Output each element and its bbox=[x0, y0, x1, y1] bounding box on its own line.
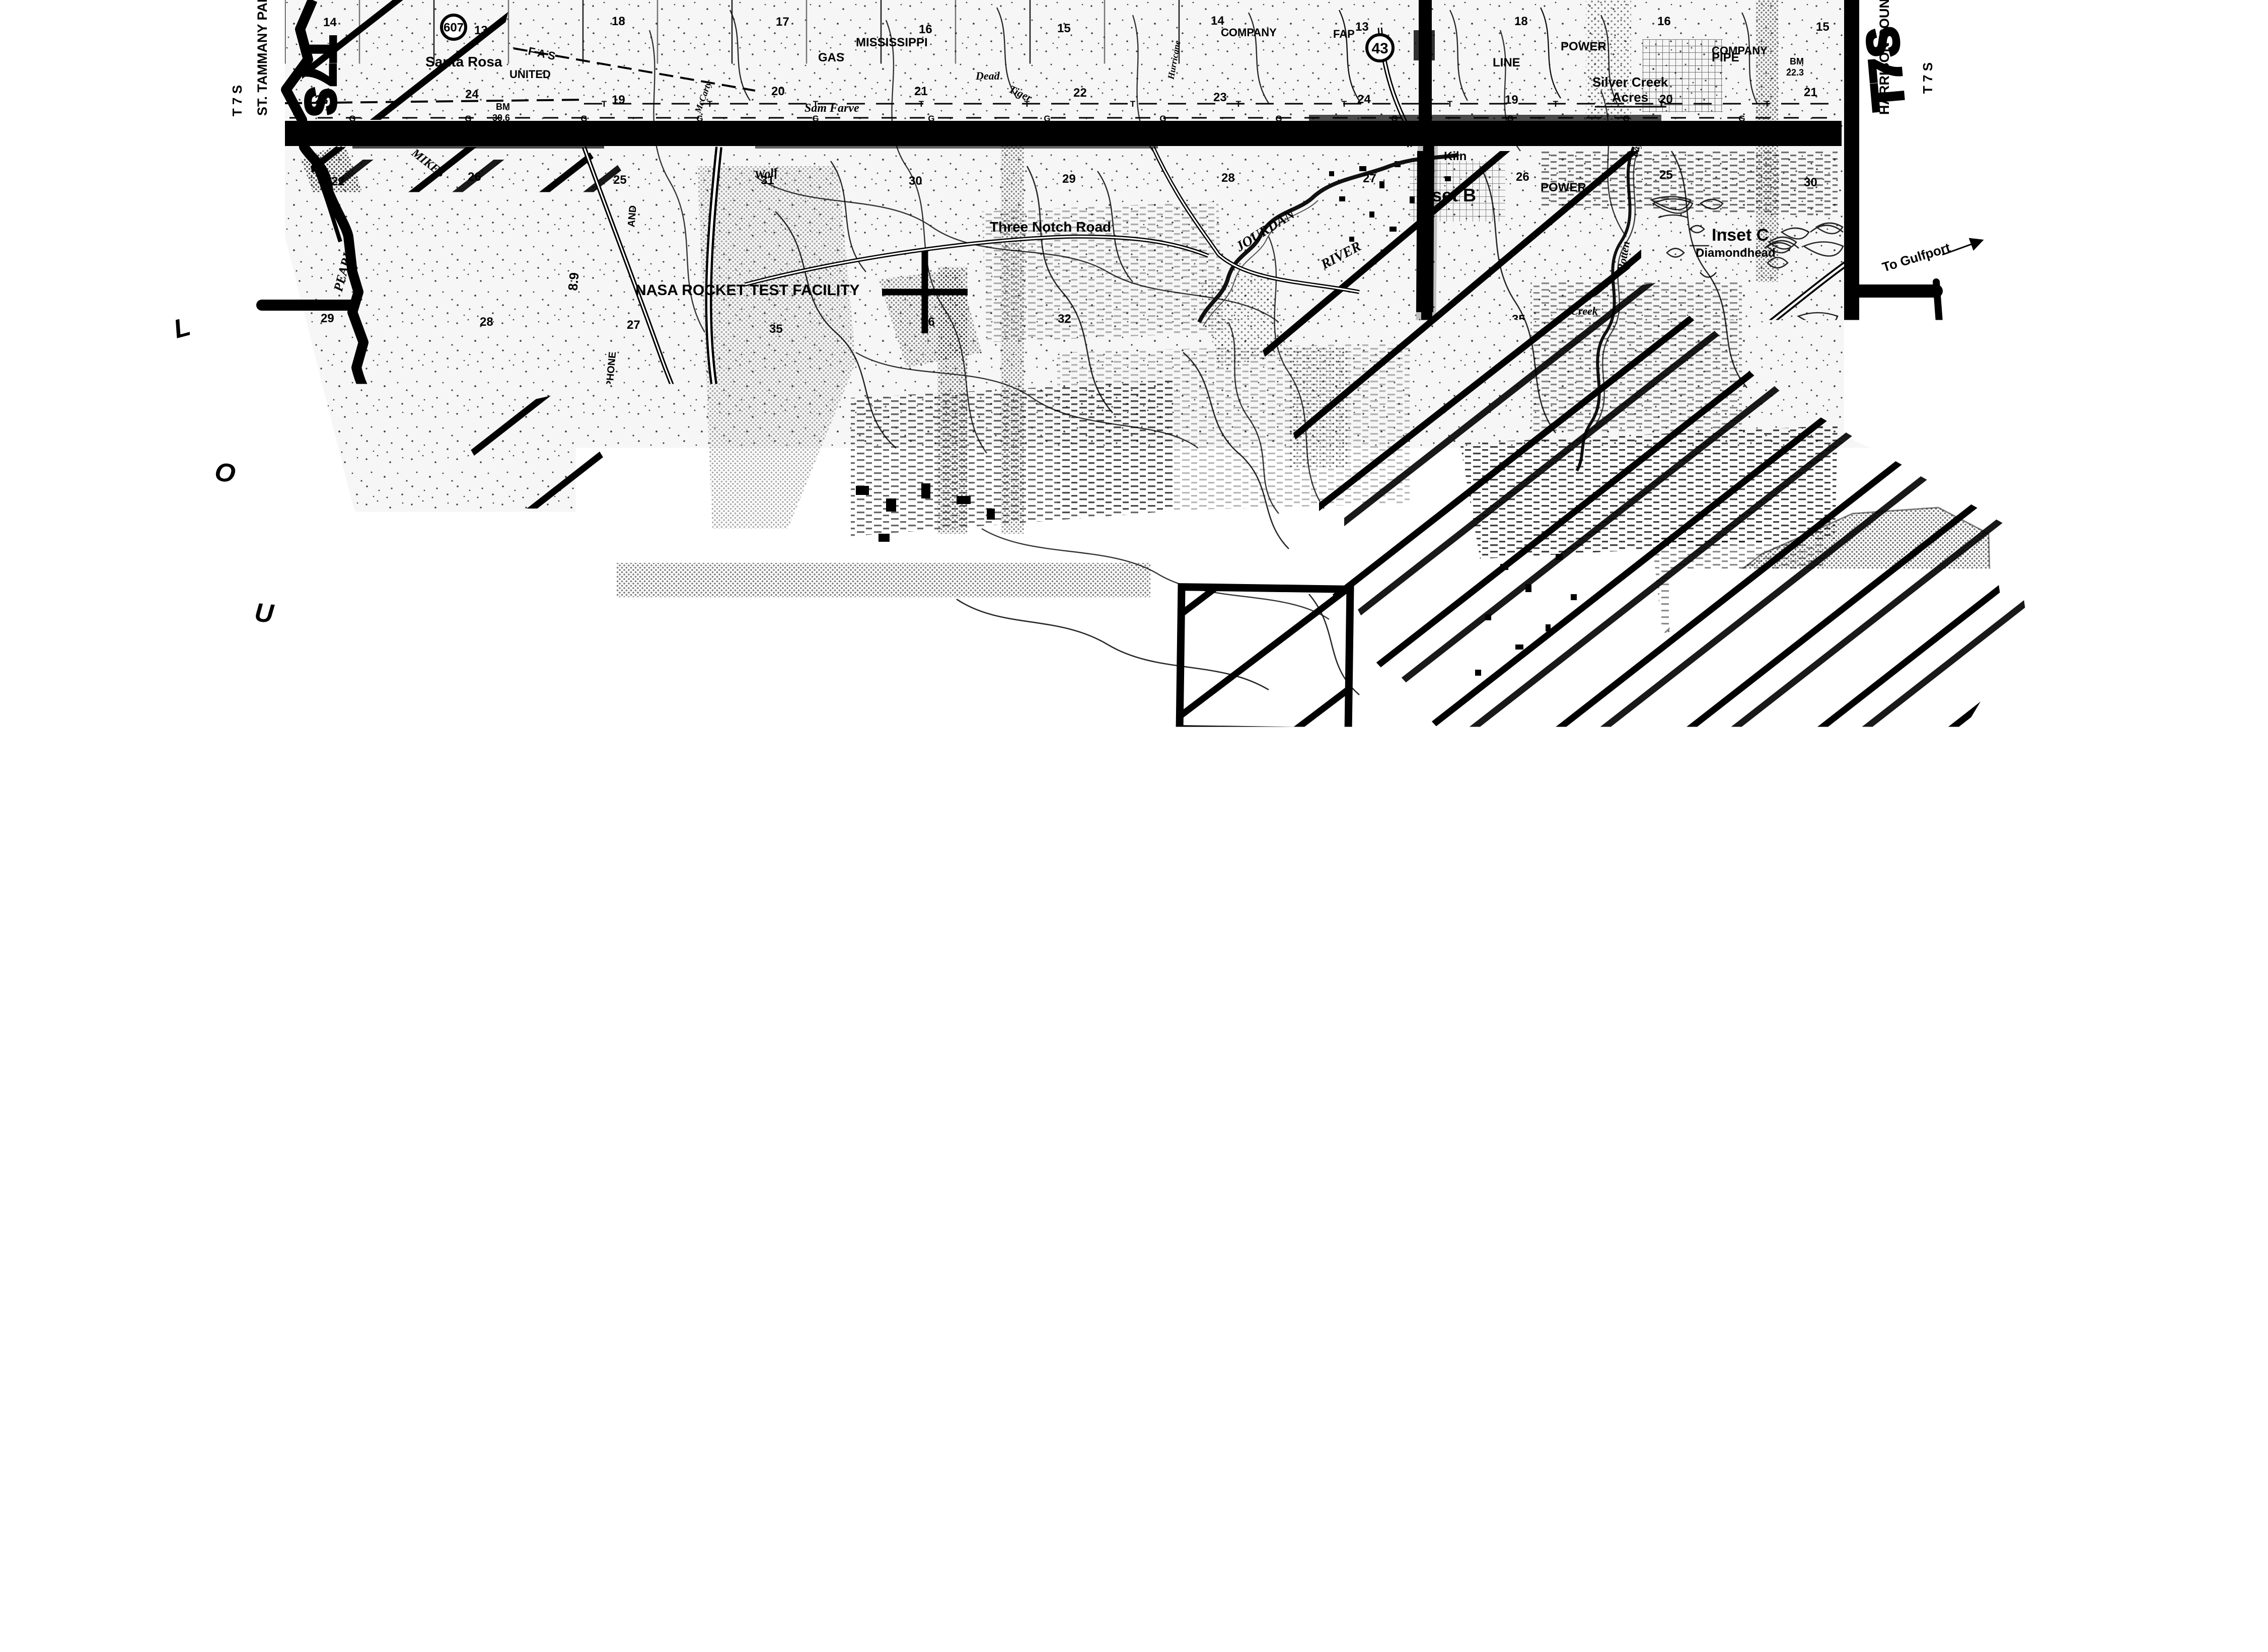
svg-text:JOHN: JOHN bbox=[1295, 332, 1323, 343]
svg-text:HANCOCK COUNTY: HANCOCK COUNTY bbox=[1542, 1145, 2040, 1214]
svg-text:GRAND-: GRAND- bbox=[986, 1203, 1030, 1216]
svg-text:To New Orleans: To New Orleans bbox=[384, 721, 474, 734]
svg-text:13: 13 bbox=[1220, 904, 1234, 918]
svg-text:X: X bbox=[1770, 531, 1776, 541]
svg-text:10: 10 bbox=[799, 608, 817, 626]
svg-text:26: 26 bbox=[1516, 170, 1529, 184]
svg-text:BALDWIN: BALDWIN bbox=[915, 1247, 968, 1260]
svg-text:24: 24 bbox=[616, 1042, 630, 1055]
svg-text:Lower: Lower bbox=[677, 805, 706, 817]
svg-text:Santa Rosa: Santa Rosa bbox=[425, 54, 502, 69]
svg-text:T 8 S: T 8 S bbox=[403, 509, 417, 539]
svg-text:COMPANY: COMPANY bbox=[1712, 44, 1768, 57]
svg-text:607: 607 bbox=[444, 21, 464, 35]
svg-text:Ansley: Ansley bbox=[1153, 1103, 1193, 1117]
svg-text:PAGE: PAGE bbox=[1647, 1324, 1696, 1343]
svg-text:BM 20: BM 20 bbox=[1766, 510, 1793, 520]
svg-text:UNINSURABLE EXCEPT BY FCI-2: UNINSURABLE EXCEPT BY FCI-2 bbox=[1725, 1253, 1967, 1272]
svg-text:10.9: 10.9 bbox=[1168, 556, 1196, 572]
svg-text:ISLAND: ISLAND bbox=[1353, 1146, 1392, 1158]
svg-text:22: 22 bbox=[331, 175, 345, 188]
svg-text:16: 16 bbox=[1657, 15, 1671, 28]
svg-text:Three Notch Road: Three Notch Road bbox=[990, 219, 1111, 235]
svg-text:24: 24 bbox=[1357, 93, 1371, 106]
svg-text:5.5: 5.5 bbox=[1449, 441, 1464, 452]
svg-text:Lakeshore: Lakeshore bbox=[1341, 974, 1407, 989]
svg-text:T: T bbox=[1130, 99, 1136, 109]
svg-text:21: 21 bbox=[1804, 86, 1817, 99]
svg-text:14: 14 bbox=[1211, 14, 1224, 28]
svg-text:BUCCANEER: BUCCANEER bbox=[1521, 980, 1592, 992]
svg-text:AND: AND bbox=[626, 205, 639, 228]
svg-text:ST. TAMMANY PARISH: ST. TAMMANY PARISH bbox=[255, 0, 270, 116]
svg-text:26: 26 bbox=[911, 1188, 924, 1202]
svg-text:R15W: R15W bbox=[1153, 1465, 1275, 1512]
svg-text:5: 5 bbox=[1368, 468, 1374, 481]
svg-text:6: 6 bbox=[1207, 461, 1213, 474]
svg-text:T: T bbox=[1447, 99, 1453, 109]
svg-text:ACREAGE SO DESIGNATED IS: ACREAGE SO DESIGNATED IS bbox=[1726, 1235, 1948, 1254]
svg-text:Inset E: Inset E bbox=[662, 1064, 728, 1086]
svg-text:21.6: 21.6 bbox=[1763, 520, 1781, 530]
svg-text:FAP: FAP bbox=[1333, 28, 1355, 40]
svg-text:30: 30 bbox=[909, 174, 922, 188]
svg-text:22: 22 bbox=[1073, 86, 1087, 100]
svg-text:MAP: MAP bbox=[1336, 690, 1362, 703]
svg-text:WAVELAND: WAVELAND bbox=[1609, 752, 1700, 770]
svg-text:3: 3 bbox=[1835, 1307, 1849, 1335]
svg-text:SEE: SEE bbox=[1337, 640, 1361, 654]
svg-text:20: 20 bbox=[1659, 93, 1673, 106]
svg-text:R 17 W: R 17 W bbox=[323, 652, 370, 668]
svg-text:7: 7 bbox=[776, 753, 783, 766]
svg-text:16: 16 bbox=[776, 900, 789, 914]
svg-text:29: 29 bbox=[1362, 1188, 1376, 1201]
svg-text:Vermont: Vermont bbox=[1380, 891, 1429, 904]
svg-text:25: 25 bbox=[613, 173, 627, 187]
svg-text:1: 1 bbox=[1070, 458, 1077, 471]
svg-text:8: 8 bbox=[920, 754, 927, 768]
svg-text:GAS: GAS bbox=[818, 51, 844, 64]
svg-text:8: 8 bbox=[1509, 609, 1515, 622]
svg-text:T 9 S: T 9 S bbox=[455, 967, 469, 997]
svg-text:17: 17 bbox=[615, 901, 628, 915]
svg-text:24: 24 bbox=[770, 1194, 784, 1208]
svg-text:34: 34 bbox=[1358, 323, 1371, 336]
svg-text:T7S: T7S bbox=[1857, 24, 1914, 112]
svg-text:19: 19 bbox=[765, 1048, 779, 1061]
svg-text:2.8: 2.8 bbox=[558, 692, 577, 708]
svg-text:MISSISSIPPI: MISSISSIPPI bbox=[856, 36, 928, 49]
svg-text:604: 604 bbox=[710, 782, 732, 798]
svg-text:NASA ROCKET TEST FACILITY: NASA ROCKET TEST FACILITY bbox=[635, 282, 860, 299]
svg-text:90: 90 bbox=[1639, 699, 1655, 715]
svg-text:X 13.4: X 13.4 bbox=[577, 417, 603, 427]
svg-text:14.3: 14.3 bbox=[1231, 702, 1247, 711]
svg-text:34: 34 bbox=[770, 466, 783, 480]
svg-text:28: 28 bbox=[1221, 171, 1235, 185]
svg-text:12: 12 bbox=[1206, 606, 1219, 619]
svg-text:36: 36 bbox=[1665, 317, 1679, 331]
svg-text:T: T bbox=[1236, 99, 1241, 109]
svg-text:DATE PREPARED: DATE PREPARED bbox=[1650, 1368, 1805, 1388]
svg-text:26: 26 bbox=[468, 170, 481, 184]
svg-text:13: 13 bbox=[474, 24, 488, 37]
svg-text:LINE: LINE bbox=[1493, 56, 1520, 69]
svg-text:OF: OF bbox=[1800, 1326, 1822, 1344]
svg-text:Napolean: Napolean bbox=[585, 614, 648, 629]
svg-text:607: 607 bbox=[618, 547, 640, 562]
svg-text:CEDAR: CEDAR bbox=[1352, 1135, 1389, 1146]
svg-text:X: X bbox=[644, 541, 650, 551]
svg-text:15: 15 bbox=[1816, 20, 1830, 34]
svg-text:BAY ST. LOUIS: BAY ST. LOUIS bbox=[1306, 657, 1392, 670]
svg-text:43: 43 bbox=[1371, 40, 1388, 57]
svg-text:12: 12 bbox=[614, 755, 628, 769]
svg-text:30.6: 30.6 bbox=[492, 113, 510, 123]
svg-text:UNITED: UNITED bbox=[509, 68, 551, 81]
svg-text:Acres: Acres bbox=[1612, 90, 1648, 105]
svg-text:43: 43 bbox=[1451, 467, 1468, 483]
svg-text:R14W: R14W bbox=[1605, 920, 1715, 963]
svg-text:COMPANY: COMPANY bbox=[1221, 26, 1277, 39]
svg-text:8.3: 8.3 bbox=[795, 909, 815, 924]
svg-text:POWER: POWER bbox=[1561, 40, 1606, 53]
svg-text:LODGE: LODGE bbox=[926, 1260, 965, 1272]
svg-text:T 7 S: T 7 S bbox=[230, 85, 245, 116]
svg-text:18: 18 bbox=[1814, 758, 1827, 771]
svg-text:30: 30 bbox=[1804, 176, 1817, 189]
svg-text:HERON BAY POINT: HERON BAY POINT bbox=[1180, 1364, 1282, 1377]
svg-text:Inset: Inset bbox=[1220, 1118, 1260, 1137]
svg-text:18: 18 bbox=[1514, 15, 1528, 28]
svg-text:13: 13 bbox=[1355, 20, 1369, 34]
svg-text:CAMPBELL: CAMPBELL bbox=[1115, 1231, 1174, 1242]
svg-text:T10S: T10S bbox=[1382, 1250, 1433, 1348]
svg-text:STENNIS: STENNIS bbox=[1289, 343, 1333, 354]
svg-text:4: 4 bbox=[912, 612, 919, 626]
svg-text:AIRPORT: AIRPORT bbox=[1292, 354, 1337, 365]
svg-text:Harbor: Harbor bbox=[1383, 904, 1423, 917]
svg-text:T 10 S: T 10 S bbox=[652, 1342, 665, 1377]
svg-text:21: 21 bbox=[914, 85, 928, 98]
svg-text:8.9: 8.9 bbox=[565, 272, 582, 292]
svg-text:COWAND POINT: COWAND POINT bbox=[1877, 521, 1964, 534]
svg-text:T: T bbox=[707, 99, 713, 109]
svg-text:27: 27 bbox=[627, 318, 640, 332]
svg-text:607: 607 bbox=[828, 706, 850, 721]
svg-text:AGREEMENT BETWEEN THE FAO: AGREEMENT BETWEEN THE FAO bbox=[1725, 1271, 1971, 1290]
svg-text:36: 36 bbox=[921, 315, 935, 329]
svg-text:PAGES: PAGES bbox=[1864, 1327, 1925, 1345]
svg-text:Diamondhead: Diamondhead bbox=[1696, 246, 1776, 260]
svg-text:PO. 6.752 23: PO. 6.752 23 bbox=[1837, 673, 1908, 687]
svg-text:Devils: Devils bbox=[1015, 419, 1044, 432]
svg-text:BM: BM bbox=[958, 1534, 970, 1543]
svg-text:Dead: Dead bbox=[975, 69, 1000, 82]
svg-text:T: T bbox=[602, 99, 607, 109]
svg-text:ISLAND: ISLAND bbox=[1126, 1242, 1165, 1253]
svg-text:BM: BM bbox=[1790, 56, 1804, 66]
svg-text:22: 22 bbox=[1206, 1042, 1219, 1056]
svg-text:Kiln: Kiln bbox=[1444, 150, 1467, 163]
svg-text:32: 32 bbox=[1058, 312, 1071, 326]
svg-text:32: 32 bbox=[479, 466, 493, 479]
svg-text:T8S: T8S bbox=[437, 478, 491, 562]
svg-text:STATE PARK: STATE PARK bbox=[1525, 992, 1594, 1004]
svg-text:18: 18 bbox=[612, 15, 625, 28]
svg-text:R 16 W: R 16 W bbox=[517, 656, 564, 672]
svg-text:29: 29 bbox=[321, 312, 334, 325]
svg-text:T10S: T10S bbox=[654, 1248, 700, 1337]
svg-text:5: 5 bbox=[773, 608, 780, 622]
svg-text:BROWNS ISLAND: BROWNS ISLAND bbox=[538, 1143, 641, 1157]
svg-text:28: 28 bbox=[924, 1333, 938, 1346]
svg-text:Inset D: Inset D bbox=[1210, 822, 1271, 843]
svg-text:6: 6 bbox=[621, 603, 628, 616]
svg-text:20: 20 bbox=[771, 85, 785, 98]
svg-text:R 14 W: R 14 W bbox=[1618, 965, 1661, 980]
svg-text:T: T bbox=[1765, 99, 1770, 109]
svg-text:19: 19 bbox=[612, 93, 625, 107]
svg-text:23: 23 bbox=[1353, 1050, 1366, 1063]
svg-text:33: 33 bbox=[620, 462, 634, 475]
svg-text:20: 20 bbox=[912, 1042, 926, 1056]
svg-text:BM: BM bbox=[963, 691, 975, 700]
svg-text:90: 90 bbox=[825, 912, 841, 928]
svg-text:25: 25 bbox=[1659, 168, 1673, 182]
svg-text:14: 14 bbox=[323, 16, 337, 29]
svg-text:T 7 S: T 7 S bbox=[1920, 62, 1935, 94]
svg-text:Lighthouse Bayou: Lighthouse Bayou bbox=[1224, 1347, 1308, 1360]
svg-text:22: 22 bbox=[1519, 901, 1532, 914]
svg-text:Logtown: Logtown bbox=[576, 843, 635, 859]
svg-text:1: 1 bbox=[474, 613, 480, 627]
svg-text:24: 24 bbox=[465, 88, 479, 101]
svg-text:To New Orleans: To New Orleans bbox=[498, 1046, 589, 1059]
svg-text:2: 2 bbox=[1816, 467, 1823, 481]
svg-text:R 16 W: R 16 W bbox=[685, 1551, 729, 1566]
svg-text:16: 16 bbox=[919, 23, 932, 36]
svg-text:14: 14 bbox=[1060, 906, 1073, 919]
svg-text:35: 35 bbox=[1512, 313, 1525, 326]
svg-text:2: 2 bbox=[923, 466, 929, 479]
svg-text:28: 28 bbox=[480, 315, 493, 329]
svg-text:26: 26 bbox=[1207, 1344, 1220, 1357]
svg-text:T: T bbox=[1553, 99, 1559, 109]
svg-text:U: U bbox=[253, 598, 275, 629]
svg-text:BM: BM bbox=[580, 406, 594, 416]
svg-text:JACKSON LANDING: JACKSON LANDING bbox=[828, 1207, 945, 1220]
svg-text:T: T bbox=[1342, 99, 1347, 109]
svg-text:4: 4 bbox=[1503, 457, 1510, 471]
svg-text:19.0: 19.0 bbox=[637, 530, 655, 540]
svg-text:6.3: 6.3 bbox=[856, 700, 875, 716]
svg-text:23: 23 bbox=[1662, 901, 1676, 914]
svg-text:11: 11 bbox=[1358, 751, 1371, 764]
svg-text:CEDAR POINT: CEDAR POINT bbox=[1839, 491, 1915, 504]
svg-text:3: 3 bbox=[1734, 1309, 1748, 1337]
svg-text:PLAIN: PLAIN bbox=[995, 1215, 1029, 1228]
svg-text:WAVELAND: WAVELAND bbox=[1315, 673, 1383, 687]
svg-text:17.2: 17.2 bbox=[960, 700, 975, 709]
svg-text:POP. 3.108: POP. 3.108 bbox=[1617, 770, 1673, 783]
svg-text:BM: BM bbox=[496, 102, 510, 112]
svg-text:17: 17 bbox=[1354, 902, 1368, 915]
svg-text:33: 33 bbox=[1220, 317, 1234, 331]
svg-text:17.0: 17.0 bbox=[955, 1543, 970, 1552]
svg-text:27: 27 bbox=[1363, 172, 1376, 185]
svg-text:AND THE POLICYHOLDER.: AND THE POLICYHOLDER. bbox=[1725, 1289, 1921, 1308]
svg-text:10: 10 bbox=[1209, 750, 1222, 763]
svg-text:35: 35 bbox=[769, 322, 783, 336]
svg-text:15: 15 bbox=[925, 900, 939, 913]
svg-text:5-16-86: 5-16-86 bbox=[1813, 1352, 1908, 1388]
svg-text:25: 25 bbox=[1361, 1341, 1374, 1354]
svg-text:Gainesville: Gainesville bbox=[523, 430, 597, 446]
svg-text:23: 23 bbox=[315, 93, 328, 107]
svg-text:R13W: R13W bbox=[1870, 787, 2003, 838]
svg-text:25: 25 bbox=[1071, 1194, 1085, 1207]
svg-text:Inset C: Inset C bbox=[1712, 226, 1769, 245]
svg-text:22.3: 22.3 bbox=[1786, 67, 1804, 78]
svg-text:10.9: 10.9 bbox=[1455, 710, 1484, 727]
svg-text:R 15 W: R 15 W bbox=[1102, 1484, 1146, 1499]
svg-text:15: 15 bbox=[1057, 22, 1071, 35]
svg-text:POINT: POINT bbox=[1330, 1362, 1360, 1373]
svg-text:Creek: Creek bbox=[1571, 305, 1598, 317]
svg-text:9: 9 bbox=[1662, 610, 1669, 624]
svg-text:LOWER: LOWER bbox=[1325, 1352, 1362, 1363]
svg-text:BM: BM bbox=[1234, 693, 1247, 702]
svg-text:Silver Creek: Silver Creek bbox=[1592, 75, 1668, 90]
svg-text:T: T bbox=[919, 99, 924, 109]
svg-text:17: 17 bbox=[776, 15, 789, 29]
svg-text:29: 29 bbox=[1062, 172, 1076, 186]
svg-text:POWER: POWER bbox=[1541, 181, 1586, 194]
svg-text:13: 13 bbox=[1657, 749, 1670, 762]
svg-text:9: 9 bbox=[1068, 752, 1074, 766]
svg-text:CLEAR: CLEAR bbox=[1330, 1372, 1365, 1383]
svg-text:21: 21 bbox=[1066, 1050, 1080, 1064]
svg-text:23: 23 bbox=[1213, 91, 1227, 104]
svg-text:Sam Farve: Sam Farve bbox=[804, 102, 859, 115]
svg-text:Devils: Devils bbox=[717, 822, 746, 834]
svg-text:30: 30 bbox=[1219, 1194, 1233, 1208]
svg-text:31: 31 bbox=[761, 174, 774, 187]
svg-text:19: 19 bbox=[1505, 93, 1518, 107]
svg-text:BM: BM bbox=[640, 520, 654, 530]
svg-text:27: 27 bbox=[1072, 1337, 1086, 1351]
svg-text:3: 3 bbox=[1659, 467, 1666, 480]
svg-text:11: 11 bbox=[479, 753, 492, 766]
svg-text:HERON BAY: HERON BAY bbox=[1210, 1316, 1309, 1334]
svg-text:90: 90 bbox=[441, 926, 456, 942]
svg-text:3: 3 bbox=[1059, 610, 1066, 624]
svg-text:7: 7 bbox=[1362, 605, 1368, 618]
